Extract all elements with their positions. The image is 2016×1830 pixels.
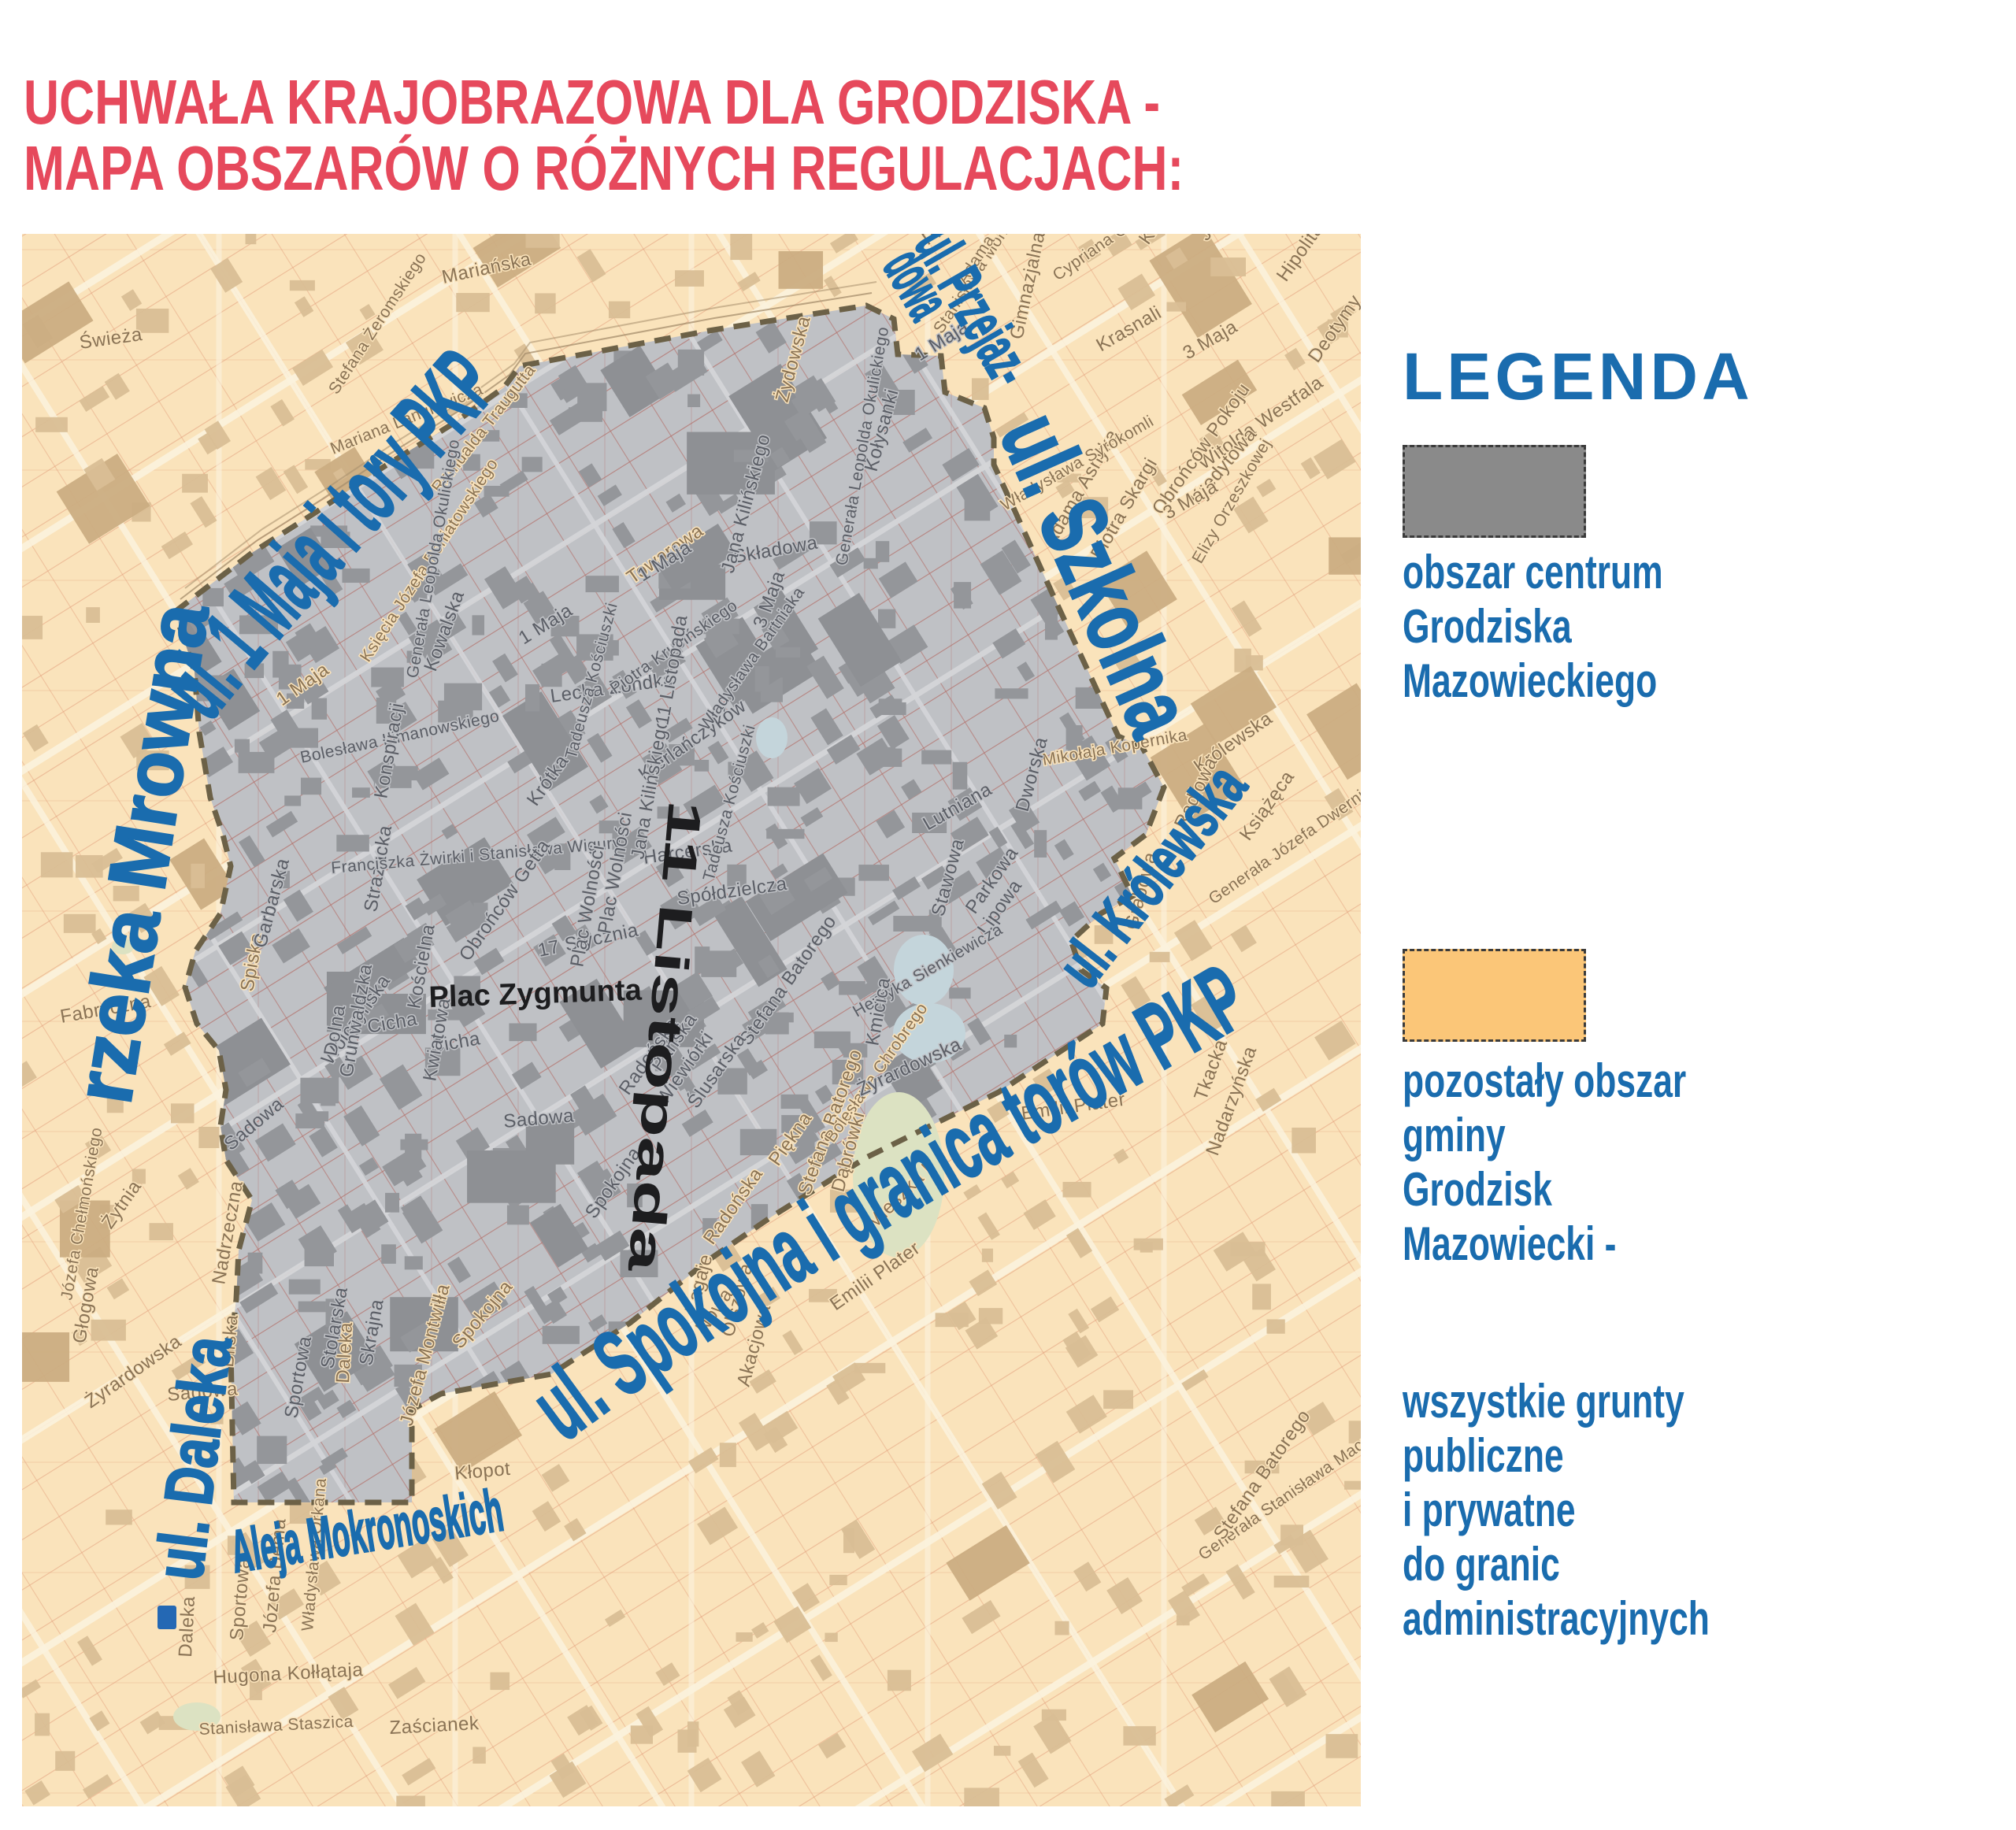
building (776, 647, 800, 658)
map-container: MariańskaŚwieżaRomualda TrauguttaTowarow… (22, 234, 1361, 1806)
building (953, 762, 968, 790)
street-label: Daleka (175, 1595, 199, 1658)
building (609, 302, 630, 319)
legend-line: Grodzisk (1403, 1162, 1686, 1217)
building (525, 234, 559, 248)
building (675, 270, 704, 287)
building (781, 1095, 809, 1109)
building (1177, 1615, 1190, 1625)
building (1267, 1319, 1285, 1333)
legend-line: Grodziska (1403, 599, 1663, 654)
building (873, 749, 902, 767)
building (22, 1332, 69, 1382)
building (182, 474, 208, 493)
building (982, 1249, 993, 1262)
building (239, 752, 275, 773)
building (385, 1193, 399, 1213)
building (522, 457, 543, 472)
building (1042, 1710, 1066, 1721)
building (1291, 1128, 1316, 1153)
building (779, 251, 823, 289)
building (1150, 952, 1170, 962)
building (400, 1139, 428, 1150)
building (695, 760, 709, 772)
building (55, 1751, 75, 1771)
building (86, 607, 100, 623)
poi-marker (157, 1606, 176, 1629)
legend-label-remaining-area-note: wszystkie grunty publiczne i prywatne do… (1403, 1374, 1710, 1646)
building (290, 280, 315, 291)
building (284, 795, 301, 806)
building (829, 1575, 847, 1585)
building (949, 987, 970, 998)
building (1210, 257, 1246, 276)
building (246, 234, 257, 244)
building (396, 1796, 425, 1806)
building (888, 1670, 911, 1691)
building (1271, 1791, 1305, 1806)
building (305, 1248, 334, 1266)
building (965, 495, 991, 520)
building (490, 1673, 510, 1690)
building (507, 1206, 529, 1225)
building (1329, 537, 1361, 574)
building (979, 1308, 1002, 1324)
building (198, 1127, 219, 1148)
page-title-line2: MAPA OBSZARÓW O RÓŻNYCH REGULACJACH: (24, 135, 1184, 202)
building (149, 1223, 172, 1240)
building (839, 981, 865, 995)
building (1063, 1182, 1091, 1198)
building (936, 1313, 969, 1327)
building (964, 1787, 999, 1806)
legend-line: wszystkie grunty (1403, 1374, 1710, 1428)
building (1123, 1726, 1155, 1746)
building (235, 739, 250, 753)
building (35, 417, 68, 432)
building (1034, 830, 1047, 858)
building (472, 1747, 485, 1764)
legend-swatch-remaining-area (1403, 949, 1586, 1042)
building (467, 1150, 556, 1203)
building (879, 698, 902, 714)
legend-heading: LEGENDA (1403, 339, 1754, 415)
building (736, 1632, 752, 1642)
building (321, 1096, 335, 1106)
building (405, 1256, 423, 1269)
building (35, 1713, 50, 1736)
building (586, 576, 619, 592)
legend-swatch-center-area (1403, 445, 1586, 538)
legend-line: Mazowieckiego (1403, 654, 1663, 708)
building (843, 1528, 854, 1553)
page-title: UCHWAŁA KRAJOBRAZOWA DLA GRODZISKA - MAP… (24, 69, 1184, 202)
building (381, 1244, 396, 1264)
legend-line: administracyjnych (1403, 1591, 1710, 1646)
legend-line: do granic (1403, 1537, 1710, 1591)
map-canvas: MariańskaŚwieżaRomualda TrauguttaTowarow… (22, 234, 1361, 1806)
building (730, 234, 752, 260)
building (687, 1721, 699, 1747)
building (91, 1320, 126, 1341)
building (876, 541, 889, 562)
building (994, 1746, 1010, 1756)
building (298, 1302, 326, 1313)
building (678, 350, 704, 376)
building (768, 787, 800, 806)
building (257, 1436, 287, 1464)
building (631, 1725, 653, 1743)
building (395, 766, 418, 780)
building (525, 684, 539, 711)
building (1344, 1481, 1361, 1490)
building (484, 486, 510, 497)
building (1103, 1390, 1133, 1409)
pond (756, 717, 787, 758)
building (535, 293, 555, 313)
legend-line: i prywatne (1403, 1483, 1710, 1537)
building (289, 1280, 321, 1295)
building (1054, 1621, 1069, 1636)
legend-line: obszar centrum (1403, 545, 1663, 599)
building (995, 688, 1028, 698)
building (1274, 1576, 1310, 1587)
legend-line: Mazowiecki - (1403, 1217, 1686, 1271)
legend-label-center-area: obszar centrum Grodziska Mazowieckiego (1403, 545, 1663, 708)
legend-line: pozostały obszar (1403, 1054, 1686, 1108)
legend-line: gminy (1403, 1108, 1686, 1162)
building (191, 864, 205, 888)
building (312, 698, 327, 720)
building (509, 1023, 536, 1041)
building (921, 750, 951, 765)
building (893, 916, 930, 932)
building (106, 1510, 132, 1524)
building (755, 666, 769, 691)
building (22, 616, 43, 639)
building (720, 1443, 736, 1467)
legend-label-remaining-area: pozostały obszar gminy Grodzisk Mazowiec… (1403, 1054, 1686, 1271)
building (687, 395, 700, 407)
building (1166, 302, 1186, 312)
building (371, 668, 404, 687)
building (352, 787, 370, 798)
building (1004, 1035, 1017, 1047)
building (1326, 1734, 1358, 1758)
page-title-line1: UCHWAŁA KRAJOBRAZOWA DLA GRODZISKA - (24, 69, 1184, 135)
building (1280, 1524, 1303, 1545)
building (171, 1103, 195, 1123)
building (456, 293, 489, 312)
legend-line: publiczne (1403, 1428, 1710, 1483)
building (858, 865, 889, 881)
building (41, 852, 73, 877)
building (1252, 1284, 1271, 1310)
building (336, 835, 369, 851)
building (878, 609, 895, 628)
building (825, 1633, 837, 1642)
building (1134, 1239, 1163, 1250)
building (301, 778, 321, 795)
building (472, 615, 484, 635)
